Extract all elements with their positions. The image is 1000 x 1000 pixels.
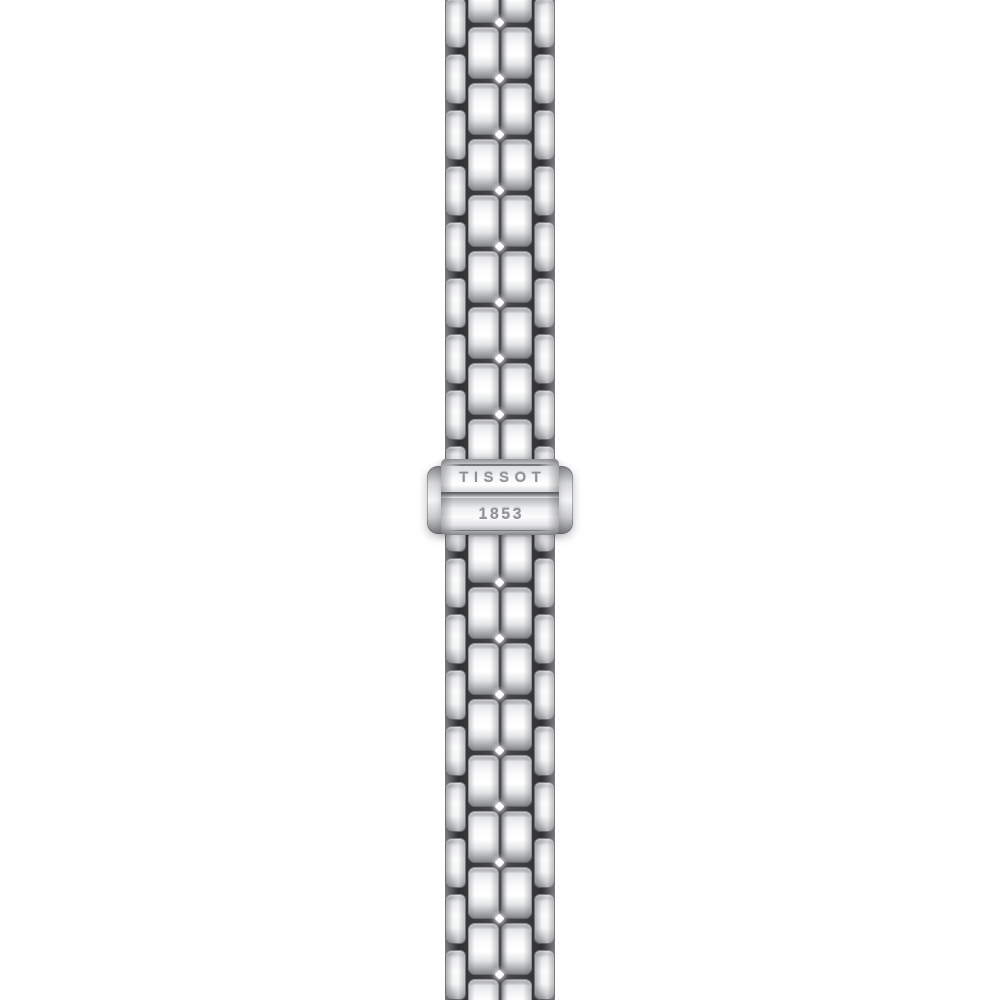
- bracelet-link: [534, 670, 555, 720]
- bracelet-link: [534, 558, 555, 608]
- bracelet-link: [501, 811, 532, 863]
- bracelet-link: [445, 838, 466, 888]
- bracelet-link: [468, 755, 499, 807]
- bracelet-link: [445, 278, 466, 328]
- clasp-lower-plate: 1853: [441, 498, 559, 535]
- bracelet-link: [501, 251, 532, 303]
- bracelet-link: [468, 139, 499, 191]
- bracelet-link: [501, 923, 532, 975]
- bracelet-link: [501, 363, 532, 415]
- bracelet-link: [501, 867, 532, 919]
- deployant-clasp: TISSOT 1853: [427, 438, 573, 562]
- bracelet-link: [468, 811, 499, 863]
- bracelet-link: [534, 726, 555, 776]
- bracelet-link: [501, 0, 532, 23]
- bracelet-link: [501, 979, 532, 1000]
- bracelet-link: [501, 27, 532, 79]
- clasp-upper-plate: TISSOT: [441, 459, 559, 492]
- bracelet-link: [501, 139, 532, 191]
- bracelet-link: [445, 782, 466, 832]
- bracelet-link: [501, 755, 532, 807]
- bracelet-link: [534, 54, 555, 104]
- bracelet-link: [501, 699, 532, 751]
- bracelet-link: [445, 54, 466, 104]
- bracelet-link: [501, 307, 532, 359]
- bracelet-link: [468, 83, 499, 135]
- bracelet-link: [534, 334, 555, 384]
- bracelet-link: [468, 923, 499, 975]
- bracelet-link: [534, 222, 555, 272]
- bracelet-link: [468, 27, 499, 79]
- bracelet-link: [445, 614, 466, 664]
- bracelet-link: [534, 278, 555, 328]
- bracelet-link: [445, 110, 466, 160]
- bracelet-link: [445, 894, 466, 944]
- bracelet-link: [445, 222, 466, 272]
- bracelet-link: [445, 726, 466, 776]
- clasp-year-engraving: 1853: [478, 506, 524, 524]
- bracelet-link: [534, 894, 555, 944]
- bracelet-link: [534, 614, 555, 664]
- bracelet-link: [534, 950, 555, 1000]
- bracelet-link: [445, 558, 466, 608]
- bracelet-link: [445, 0, 466, 48]
- bracelet-link: [534, 110, 555, 160]
- bracelet-link: [468, 643, 499, 695]
- bracelet-link: [445, 670, 466, 720]
- bracelet-link: [534, 390, 555, 440]
- bracelet-link: [501, 587, 532, 639]
- bracelet-link: [468, 195, 499, 247]
- bracelet-link: [534, 782, 555, 832]
- bracelet-link: [468, 867, 499, 919]
- product-photo: TISSOT 1853: [0, 0, 1000, 1000]
- bracelet-link: [445, 334, 466, 384]
- bracelet-link: [534, 0, 555, 48]
- bracelet-link: [445, 166, 466, 216]
- bracelet-link: [534, 166, 555, 216]
- bracelet-link: [534, 838, 555, 888]
- clasp-brand-engraving: TISSOT: [459, 469, 546, 486]
- bracelet-link: [468, 307, 499, 359]
- bracelet-link: [468, 587, 499, 639]
- bracelet-link: [468, 0, 499, 23]
- bracelet-link: [445, 950, 466, 1000]
- bracelet-link: [468, 699, 499, 751]
- clasp-body: TISSOT 1853: [441, 459, 559, 535]
- bracelet-link: [501, 83, 532, 135]
- bracelet-link: [445, 390, 466, 440]
- bracelet-link: [468, 363, 499, 415]
- bracelet-link: [468, 251, 499, 303]
- bracelet-link: [468, 979, 499, 1000]
- bracelet-link: [501, 643, 532, 695]
- bracelet-link: [501, 195, 532, 247]
